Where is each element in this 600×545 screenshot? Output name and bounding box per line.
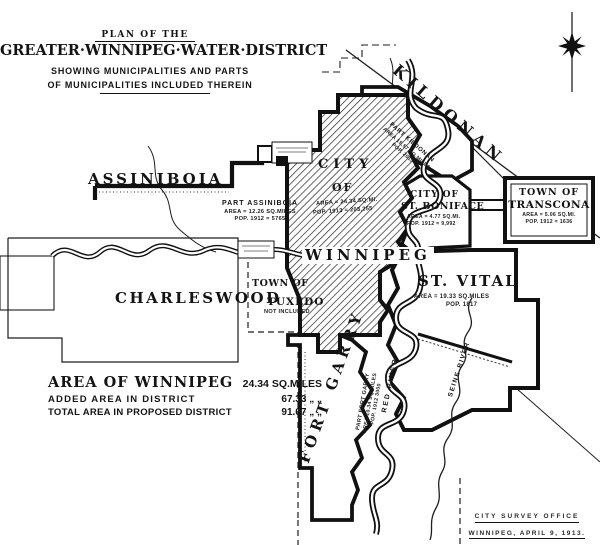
credit-line1: CITY SURVEY OFFICE [475,514,580,523]
label-tuxedo-townof: TOWN OF [252,279,309,289]
area-legend: AREA OF WINNIPEG 24.34 SQ.MILES ADDED AR… [48,376,322,418]
label-st-vital: ST. VITAL [418,274,518,289]
label-tuxedo: TUXEDO [267,297,324,308]
label-st-boniface-pop: POP. 1912 = 9,992 [407,222,456,227]
label-st-boniface: ST. BONIFACE [401,202,484,212]
title-subtitle-1: SHOWING MUNICIPALITIES AND PARTS [0,67,300,76]
label-winnipeg-city: CITY [318,158,373,171]
page-title: GREATER·WINNIPEG·WATER·DISTRICT [0,44,300,59]
label-transcona: TOWN OF TRANSCONA AREA = 5.06 SQ.MI. POP… [507,187,591,225]
label-winnipeg-of: OF [332,182,353,193]
label-charleswood: CHARLESWOOD [115,291,282,306]
credit-line2: WINNIPEG, APRIL 9, 1913. [469,531,586,540]
map-canvas: PLAN OF THE GREATER·WINNIPEG·WATER·DISTR… [0,0,600,545]
label-st-boniface-area: AREA = 4.77 SQ.MI. [407,215,461,220]
title-subtitle-2: OF MUNICIPALITIES INCLUDED THEREIN [0,81,300,90]
label-winnipeg: WINNIPEG [302,247,434,264]
title-underline-rule [100,93,210,94]
label-tuxedo-note: NOT INCLUDED [264,310,310,316]
label-assiniboia: ASSINIBOIA [88,172,223,187]
title-kicker: PLAN OF THE [95,31,195,42]
label-part-assiniboia: PART ASSINIBOIA AREA = 12.26 SQ.MILES PO… [195,200,325,223]
legend-row: AREA OF WINNIPEG 24.34 SQ.MILES [48,376,322,391]
label-st-vital-pop: POP. 1817 [446,302,477,308]
north-arrow-icon [558,12,586,92]
label-st-boniface-cityof: CITY OF [410,191,459,200]
legend-row: TOTAL AREA IN PROPOSED DISTRICT 91.67 „ … [48,408,322,418]
legend-row: ADDED AREA IN DISTRICT 67.33 „ „ [48,395,322,405]
credit-block: CITY SURVEY OFFICE WINNIPEG, APRIL 9, 19… [460,506,594,539]
label-st-vital-area: AREA = 19.33 SQ.MILES [414,294,489,300]
